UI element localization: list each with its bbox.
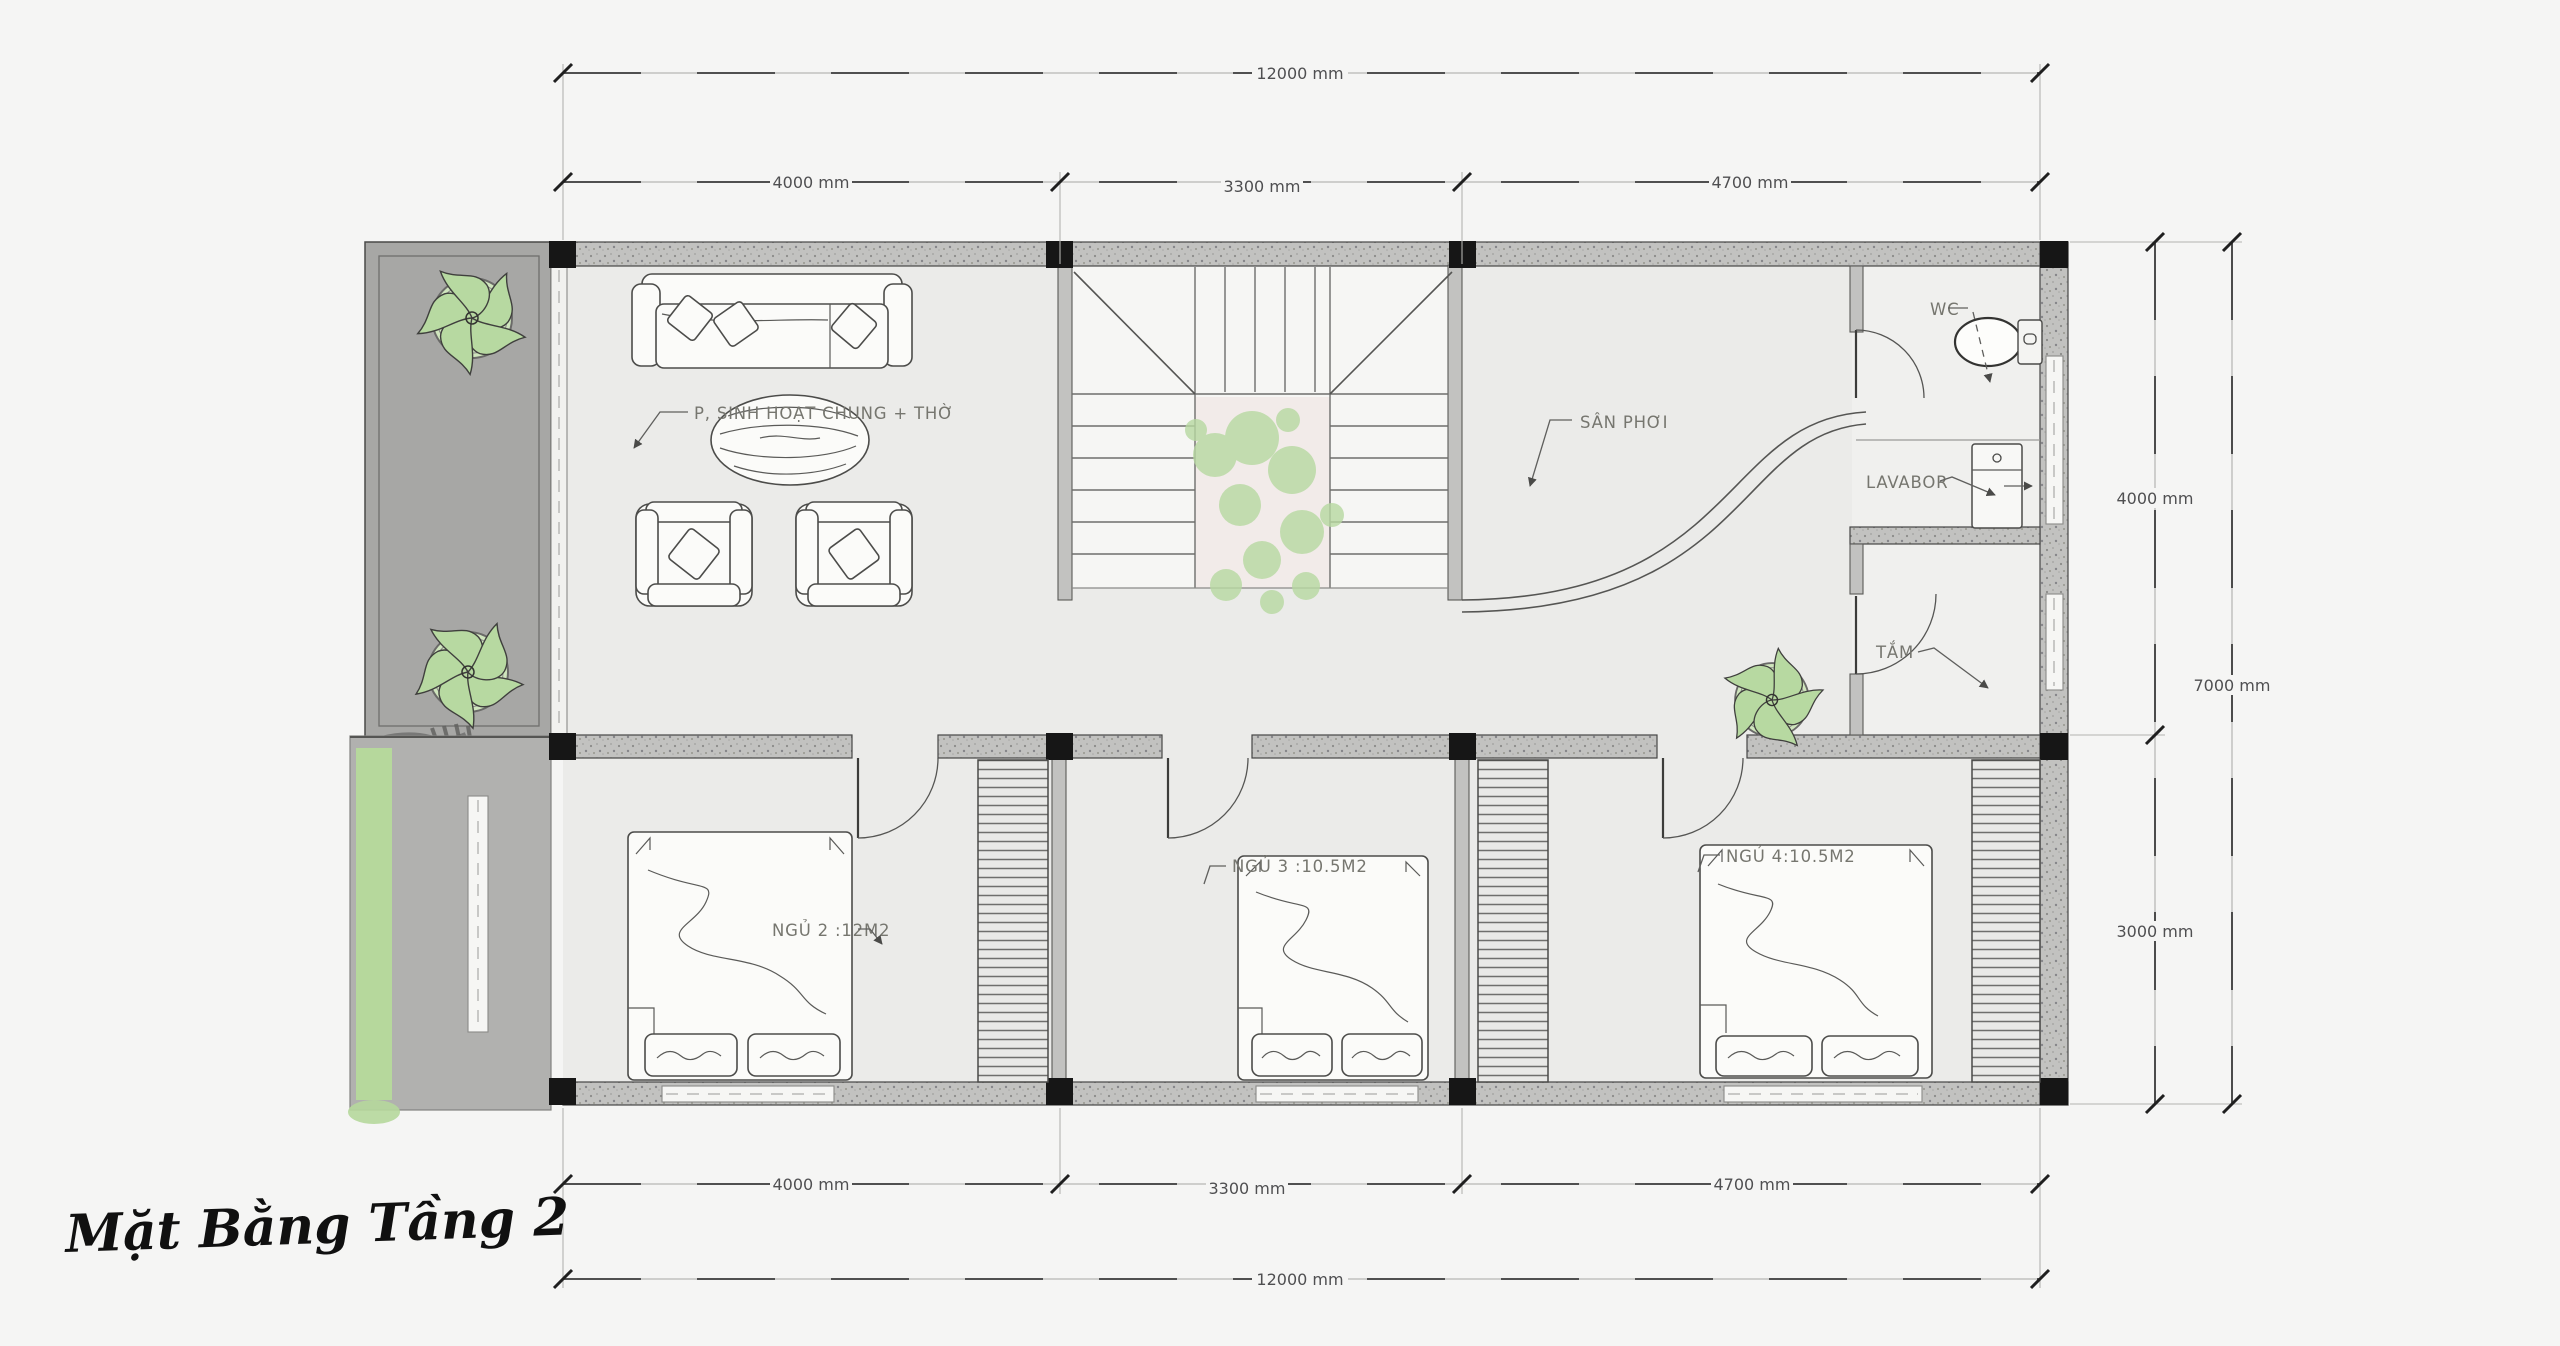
stair-wall-left — [1058, 265, 1072, 600]
pillow — [645, 1034, 737, 1076]
armchair-left — [636, 502, 752, 606]
dim-top-total: 12000 mm — [554, 63, 2049, 83]
dim-top-seg1-text: 4000 mm — [773, 173, 850, 192]
balcony — [365, 242, 551, 756]
bedroom-wall-2-3 — [1052, 758, 1066, 1082]
pillow — [1252, 1034, 1332, 1076]
plan-title: Mặt Bằng Tầng 2 — [62, 1186, 570, 1265]
column — [1046, 1078, 1073, 1105]
armchair-right — [796, 502, 912, 606]
bed-bedroom2 — [628, 832, 852, 1080]
bed-bedroom3 — [1238, 856, 1428, 1080]
side-yard-strip — [348, 736, 563, 1124]
stair-wall-right — [1448, 265, 1462, 600]
column — [2040, 241, 2068, 268]
dim-right-seg2-text: 3000 mm — [2117, 922, 2194, 941]
living-room-label: P, SINH HOẠT CHUNG + THỜ — [694, 404, 954, 423]
dim-right-segments: 4000 mm 3000 mm — [2112, 233, 2198, 1113]
column — [549, 1078, 576, 1105]
bath-wall-stub-top — [1850, 544, 1863, 594]
floor-plan-canvas: P, SINH HOẠT CHUNG + THỜ SÂN PHƠI WC LAV… — [0, 0, 2560, 1346]
toilet — [1955, 318, 2042, 366]
dim-right-seg1-text: 4000 mm — [2117, 489, 2194, 508]
column — [549, 733, 576, 760]
column — [549, 241, 576, 268]
column — [1449, 1078, 1476, 1105]
column — [2040, 1078, 2068, 1105]
dim-bottom-segments: 4000 mm 3300 mm 4700 mm — [554, 1174, 2049, 1198]
dim-bottom-seg1-text: 4000 mm — [773, 1175, 850, 1194]
grass-band — [356, 748, 392, 1100]
bedroom-wall-3-4 — [1455, 758, 1469, 1082]
lavatory-bath-divider — [1850, 527, 2040, 544]
bedroom3-label: NGỦ 3 :10.5M2 — [1232, 856, 1368, 876]
dim-top-segments: 4000 mm 3300 mm 4700 mm — [554, 172, 2049, 196]
dim-bottom-seg2-text: 3300 mm — [1209, 1179, 1286, 1198]
wardrobe-bedroom2 — [978, 760, 1048, 1082]
floor-plan-page: P, SINH HOẠT CHUNG + THỜ SÂN PHƠI WC LAV… — [0, 0, 2560, 1346]
pillow — [1342, 1034, 1422, 1076]
dim-bottom-total-text: 12000 mm — [1256, 1270, 1343, 1289]
grass-blob — [348, 1100, 400, 1124]
dim-right-total-text: 7000 mm — [2194, 676, 2271, 695]
wc-label: WC — [1930, 300, 1959, 319]
column — [2040, 733, 2068, 760]
wardrobe-bedroom4-left — [1478, 760, 1548, 1082]
lavatory-label: LAVABOR — [1866, 473, 1948, 492]
bath-label: TẮM — [1875, 641, 1914, 662]
dim-right-total: 7000 mm — [2189, 233, 2275, 1113]
dim-bottom-total: 12000 mm — [554, 1269, 2049, 1289]
dim-top-seg3-text: 4700 mm — [1712, 173, 1789, 192]
dim-top-seg2-text: 3300 mm — [1224, 177, 1301, 196]
bath-wall-stub-bottom — [1850, 674, 1863, 735]
bed-bedroom4 — [1700, 845, 1932, 1078]
bedroom2-label: NGỦ 2 :12M2 — [772, 920, 890, 940]
sofa — [632, 274, 912, 368]
drying-yard-label: SÂN PHƠI — [1580, 413, 1668, 432]
wall-top — [563, 242, 2068, 266]
dim-top-total-text: 12000 mm — [1256, 64, 1343, 83]
dim-bottom-seg3-text: 4700 mm — [1714, 1175, 1791, 1194]
column — [1046, 733, 1073, 760]
wc-wall-stub — [1850, 266, 1863, 332]
bedroom4-label: NGỦ 4:10.5M2 — [1726, 846, 1856, 866]
column — [1449, 733, 1476, 760]
pillow — [748, 1034, 840, 1076]
wall-middle-seg1 — [563, 735, 852, 758]
wardrobe-bedroom4-right — [1972, 760, 2040, 1082]
